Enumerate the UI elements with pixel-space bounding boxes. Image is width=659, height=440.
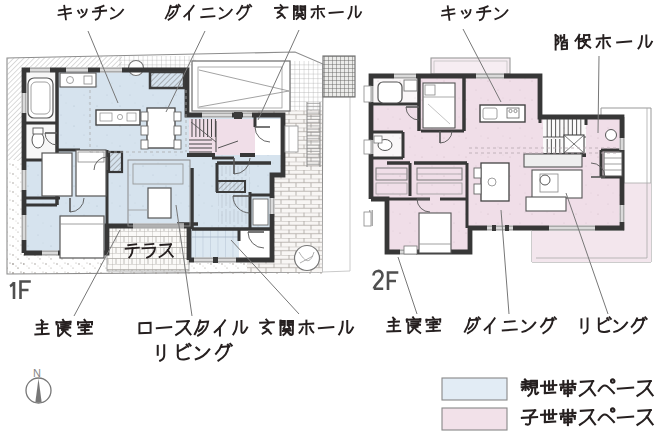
svg-text:N: N — [33, 367, 41, 379]
